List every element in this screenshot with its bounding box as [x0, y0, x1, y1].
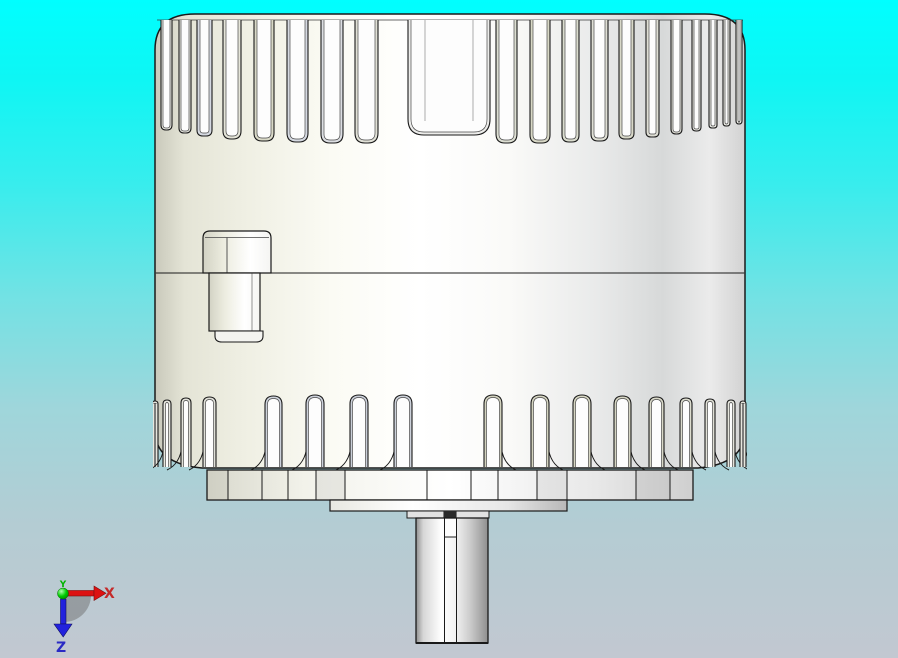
top-fin-slot-inner [622, 20, 631, 136]
bottom-fin-inner [708, 402, 713, 468]
top-fin-slot-inner [725, 20, 728, 124]
top-fin-slot-inner [533, 20, 547, 140]
bottom-fin-inner [534, 398, 547, 468]
top-fin-slot-inner [594, 20, 605, 138]
top-fin-slot-inner [181, 20, 189, 131]
bottom-fin-inner [652, 400, 662, 468]
mounting-flange[interactable] [207, 470, 693, 500]
top-fin-slot-inner [257, 20, 271, 138]
flange-shade [537, 471, 567, 499]
bottom-fin-inner [397, 398, 410, 468]
bottom-fin-inner [617, 399, 629, 468]
top-fin-slot-inner [200, 20, 209, 133]
top-fin-slot-inner [358, 20, 375, 140]
top-fin-slot-inner [290, 20, 305, 139]
top-fin-slot-inner [673, 20, 680, 132]
bottom-fin-inner [206, 400, 214, 468]
top-fin-slot-inner [499, 20, 514, 140]
cad-viewport[interactable]: Y X Z [0, 0, 898, 658]
bottom-fin-inner [576, 398, 589, 468]
bottom-fin-inner [730, 403, 733, 468]
connector-lower-block[interactable] [209, 273, 260, 331]
shaft-collar-right[interactable] [456, 511, 489, 518]
flange-shade [316, 471, 345, 499]
bottom-fin-inner [166, 403, 169, 468]
top-fin-slot-inner [565, 20, 576, 139]
keyway-notch [444, 511, 456, 518]
axis-x-label: X [104, 586, 115, 602]
keyway-flat [445, 519, 456, 537]
mounting-plate[interactable] [330, 500, 567, 511]
bottom-fin-inner [268, 399, 280, 468]
connector-bottom-lip[interactable] [215, 331, 263, 342]
bottom-fin-inner [309, 398, 322, 468]
flange-band[interactable] [207, 470, 693, 500]
top-fin-slot-inner [694, 20, 699, 129]
top-fin-slot-inner [411, 20, 487, 132]
bottom-fin-inner [353, 398, 366, 468]
axis-z-label: Z [56, 640, 66, 656]
bottom-fin-inner [487, 398, 500, 468]
bottom-fin-inner [683, 401, 690, 468]
shaft-collar-left[interactable] [407, 511, 444, 518]
bottom-fin-inner [184, 401, 189, 468]
axis-y-label: Y [59, 580, 67, 590]
top-fin-slot-inner [226, 20, 238, 136]
top-fin-slot-inner [324, 20, 340, 140]
flange-shade [636, 471, 670, 499]
top-fin-slot-inner [163, 20, 170, 128]
top-fin-slot-inner [649, 20, 656, 134]
flange-shade [207, 471, 228, 499]
top-fin-slot-inner [711, 20, 715, 126]
top-fin-slot-inner [738, 20, 740, 122]
